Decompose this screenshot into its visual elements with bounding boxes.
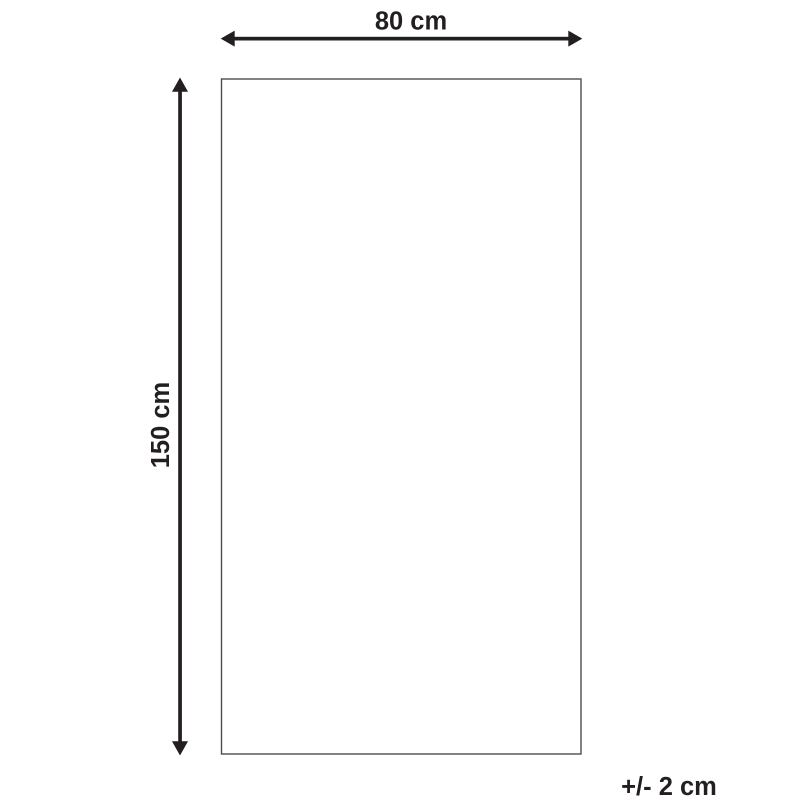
svg-text:80 cm: 80 cm: [375, 7, 447, 35]
svg-text:+/- 2 cm: +/- 2 cm: [621, 773, 717, 800]
svg-text:150 cm: 150 cm: [147, 382, 175, 469]
